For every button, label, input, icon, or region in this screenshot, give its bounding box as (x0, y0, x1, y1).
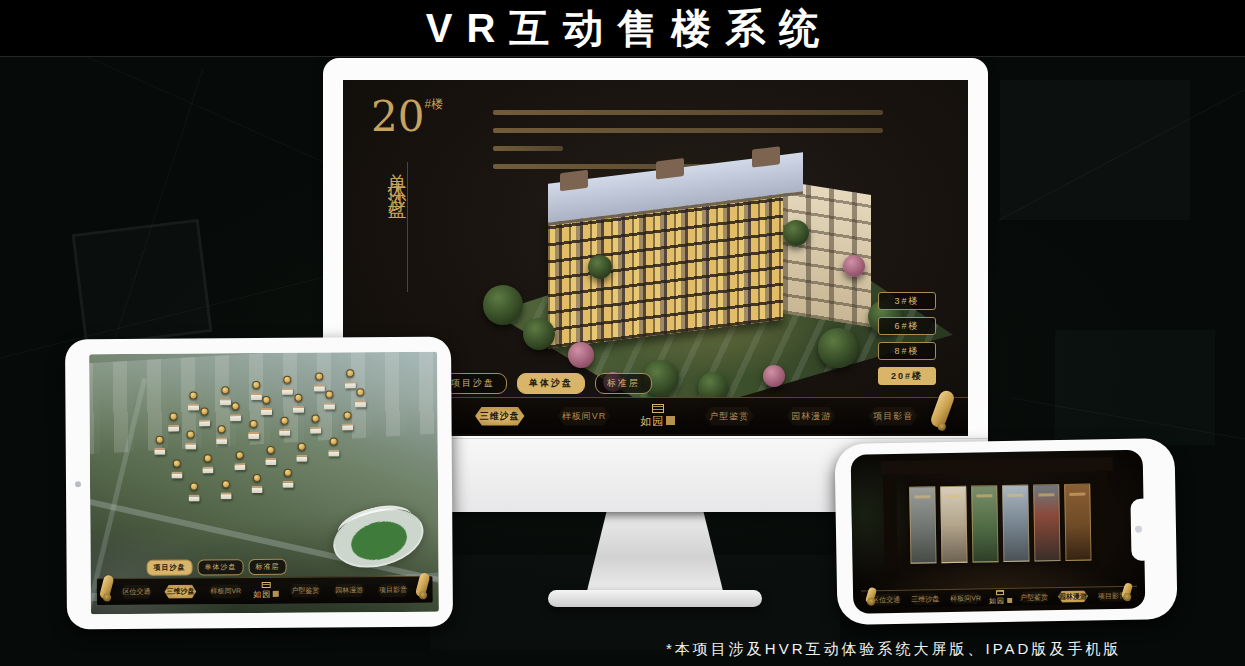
scene-panel[interactable] (1002, 485, 1029, 562)
building-marker[interactable] (294, 393, 302, 401)
nav-item[interactable]: 户型鉴赏 (1017, 591, 1051, 604)
building-marker[interactable] (263, 396, 271, 404)
nav-item[interactable]: 三维沙盘 (908, 593, 942, 606)
background-picture-frame (72, 219, 213, 348)
logo-stamp-icon (996, 590, 1004, 595)
building-marker[interactable] (343, 411, 351, 419)
building-block-art (251, 393, 262, 400)
nav-item[interactable]: 户型鉴赏 (287, 584, 323, 598)
nav-item[interactable]: 项目影音 (375, 583, 411, 597)
floor-button[interactable]: 20#楼 (878, 367, 936, 385)
building-block-art (355, 400, 366, 407)
scroll-menu-icon[interactable] (99, 574, 115, 600)
building-marker[interactable] (357, 388, 365, 396)
building-block-art (342, 423, 353, 430)
ruyuan-logo[interactable]: 如园 (640, 404, 675, 429)
nav-item[interactable]: 园林漫游 (331, 583, 367, 597)
building-block-art (252, 486, 263, 493)
logo-seal-icon (666, 416, 675, 425)
building-marker[interactable] (249, 420, 257, 428)
building-marker[interactable] (329, 437, 337, 445)
ipad-camera-icon (75, 481, 81, 487)
building-marker[interactable] (169, 413, 177, 421)
building-block-art (168, 425, 179, 432)
floor-button[interactable]: 3#楼 (878, 292, 936, 310)
building-marker[interactable] (222, 480, 230, 488)
architecture-beam-art (881, 457, 1113, 475)
building-subtitle: 单体沙盘 (385, 158, 411, 194)
building-block-art (328, 449, 339, 456)
building-number-suffix: #楼 (424, 97, 443, 111)
sandbox-tab[interactable]: 单体沙盘 (517, 373, 585, 394)
nav-item[interactable]: 户型鉴赏 (701, 407, 757, 426)
building-marker[interactable] (204, 454, 212, 462)
monitor-stand-base (548, 590, 762, 607)
stadium-art (327, 500, 430, 577)
nav-item[interactable]: 区位交通 (118, 585, 154, 599)
scene-panel[interactable] (1033, 484, 1060, 561)
building-block-art (279, 429, 290, 436)
building-marker[interactable] (284, 469, 292, 477)
floor-button[interactable]: 6#楼 (878, 317, 936, 335)
ipad-device: 项目沙盘 单体沙盘 标准层 区位交通 三维沙盘 样板间VR 如园 (65, 337, 453, 630)
nav-item[interactable]: 样板间VR (206, 584, 245, 598)
sandbox-tab[interactable]: 项目沙盘 (147, 559, 193, 575)
logo-text: 如园 (640, 415, 664, 428)
nav-item[interactable]: 园林漫游 (783, 407, 839, 426)
logo-stamp-icon (262, 582, 271, 588)
nav-item[interactable]: 三维沙盘 (472, 407, 528, 426)
building-marker[interactable] (200, 407, 208, 415)
building-block-art (220, 398, 231, 405)
nav-item[interactable]: 项目影音 (865, 407, 921, 426)
building-block-art (310, 426, 321, 433)
building-marker[interactable] (190, 392, 198, 400)
building-block-art (248, 432, 259, 439)
building-marker[interactable] (312, 414, 320, 422)
ipad-app-screen[interactable]: 项目沙盘 单体沙盘 标准层 区位交通 三维沙盘 样板间VR 如园 (89, 352, 439, 614)
building-marker[interactable] (221, 386, 229, 394)
sandbox-tab-group: 项目沙盘 单体沙盘 标准层 (439, 373, 652, 394)
logo-stamp-icon (652, 404, 664, 413)
building-block-art (313, 385, 324, 392)
phone-notch (1130, 498, 1146, 560)
sandbox-tab[interactable]: 标准层 (595, 373, 652, 394)
ipad-tab-group: 项目沙盘 单体沙盘 标准层 (147, 559, 287, 576)
building-block-art (261, 408, 272, 415)
building-marker[interactable] (280, 417, 288, 425)
header-bar: VR互动售楼系统 (0, 0, 1245, 57)
building-block-art (345, 382, 356, 389)
building-marker[interactable] (298, 443, 306, 451)
building-marker[interactable] (232, 402, 240, 410)
nav-item[interactable]: 三维沙盘 (162, 584, 198, 598)
building-marker[interactable] (325, 391, 333, 399)
scene-panel[interactable] (940, 486, 967, 563)
building-block-art (297, 455, 308, 462)
building-block-art (216, 437, 227, 444)
phone-bottom-nav: 区位交通 三维沙盘 样板间VR 如园 户型鉴赏 园林漫游 项目影音 (861, 586, 1137, 609)
phone-app-screen[interactable]: 区位交通 三维沙盘 样板间VR 如园 户型鉴赏 园林漫游 项目影音 (851, 450, 1146, 614)
building-block-art (154, 448, 165, 455)
ipad-bottom-nav: 区位交通 三维沙盘 样板间VR 如园 户型鉴赏 园林漫游 项目影音 (97, 576, 433, 605)
building-block-art (283, 481, 294, 488)
nav-item[interactable]: 样板间VR (947, 592, 984, 605)
building-marker[interactable] (235, 451, 243, 459)
building-marker[interactable] (267, 446, 275, 454)
building-block-art (189, 495, 200, 502)
sandbox-tab[interactable]: 标准层 (249, 559, 287, 575)
building-marker[interactable] (190, 483, 198, 491)
logo-text: 如园 (989, 597, 1005, 605)
building-marker[interactable] (155, 436, 163, 444)
building-marker[interactable] (173, 459, 181, 467)
building-block-art (203, 466, 214, 473)
building-block-art (230, 414, 241, 421)
scene-panel[interactable] (909, 486, 936, 563)
building-marker[interactable] (346, 370, 354, 378)
building-block-art (293, 405, 304, 412)
building-marker[interactable] (315, 373, 323, 381)
scene-gallery (909, 484, 1091, 564)
building-marker[interactable] (253, 474, 261, 482)
nav-item[interactable]: 园林漫游 (1056, 590, 1090, 603)
model-side-face (783, 181, 871, 327)
building-marker[interactable] (218, 425, 226, 433)
building-marker[interactable] (252, 381, 260, 389)
floor-button[interactable]: 8#楼 (878, 342, 936, 360)
building-block-art (282, 387, 293, 394)
nav-item[interactable]: 样板间VR (554, 407, 615, 426)
scroll-menu-icon[interactable] (415, 572, 431, 598)
building-marker[interactable] (284, 375, 292, 383)
building-block-art (185, 443, 196, 450)
sandbox-tab[interactable]: 单体沙盘 (198, 559, 244, 575)
phone-device: 区位交通 三维沙盘 样板间VR 如园 户型鉴赏 园林漫游 项目影音 (834, 438, 1177, 625)
phone-camera-icon (1135, 525, 1142, 532)
building-number: 20 (371, 92, 424, 141)
building-block-art (188, 404, 199, 411)
building-block-art (234, 463, 245, 470)
building-marker[interactable] (187, 431, 195, 439)
ruyuan-logo[interactable]: 如园 (253, 582, 279, 600)
footnote: *本项目涉及HVR互动体验系统大屏版、IPAD版及手机版 (666, 640, 1121, 659)
monitor-stand-neck (586, 511, 724, 595)
building-block-art (199, 419, 210, 426)
page-title: VR互动售楼系统 (412, 1, 834, 56)
logo-text: 如园 (253, 590, 271, 599)
building-block-art (171, 471, 182, 478)
building-title: 20#楼 (371, 96, 443, 138)
scene-panel[interactable] (971, 485, 998, 562)
logo-seal-icon (1007, 597, 1012, 602)
scene-panel[interactable] (1064, 484, 1091, 561)
building-block-art (265, 458, 276, 465)
logo-seal-icon (273, 591, 279, 597)
building-block-art (324, 403, 335, 410)
ruyuan-logo[interactable]: 如园 (989, 589, 1012, 605)
floor-button-group: 3#楼 6#楼 8#楼 20#楼 (878, 292, 936, 385)
building-block-art (220, 492, 231, 499)
